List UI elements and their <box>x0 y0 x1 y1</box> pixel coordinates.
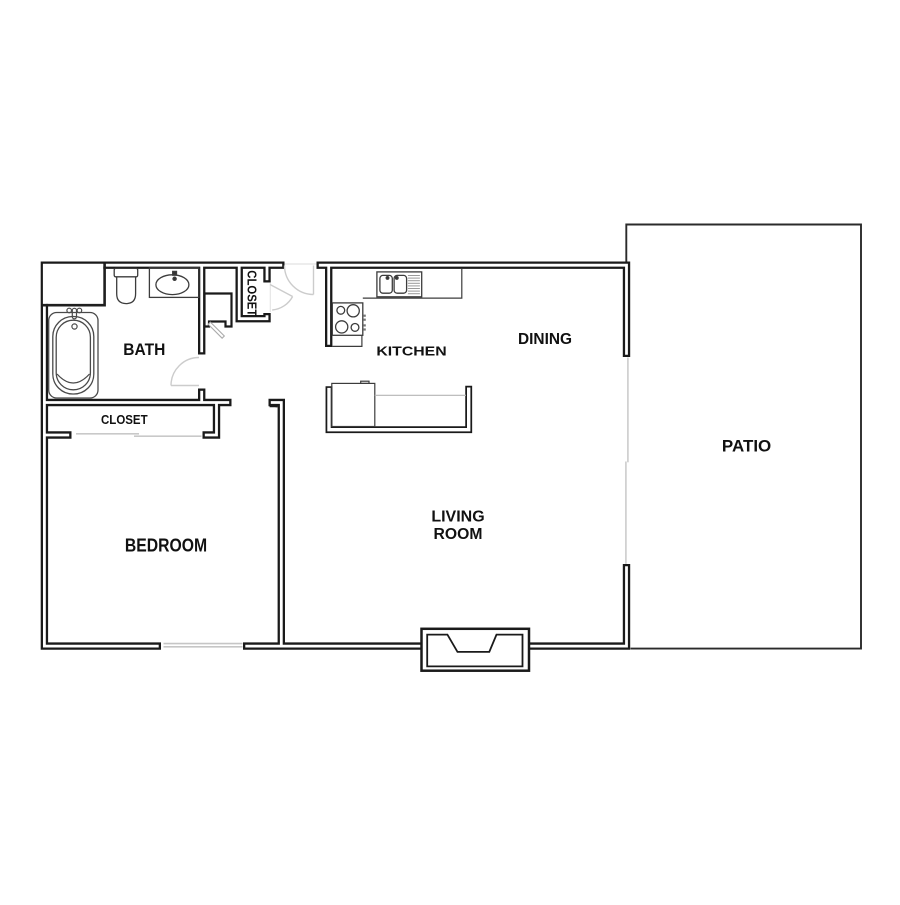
svg-text:CLOSET: CLOSET <box>101 412 148 427</box>
svg-text:BATH: BATH <box>123 341 165 359</box>
svg-text:PATIO: PATIO <box>722 438 771 456</box>
svg-text:LIVING: LIVING <box>431 508 484 525</box>
svg-text:KITCHEN: KITCHEN <box>376 343 446 358</box>
svg-text:ROOM: ROOM <box>434 526 483 543</box>
svg-text:BEDROOM: BEDROOM <box>125 536 207 556</box>
svg-text:DINING: DINING <box>518 331 572 348</box>
svg-text:CLOSET: CLOSET <box>245 270 260 316</box>
